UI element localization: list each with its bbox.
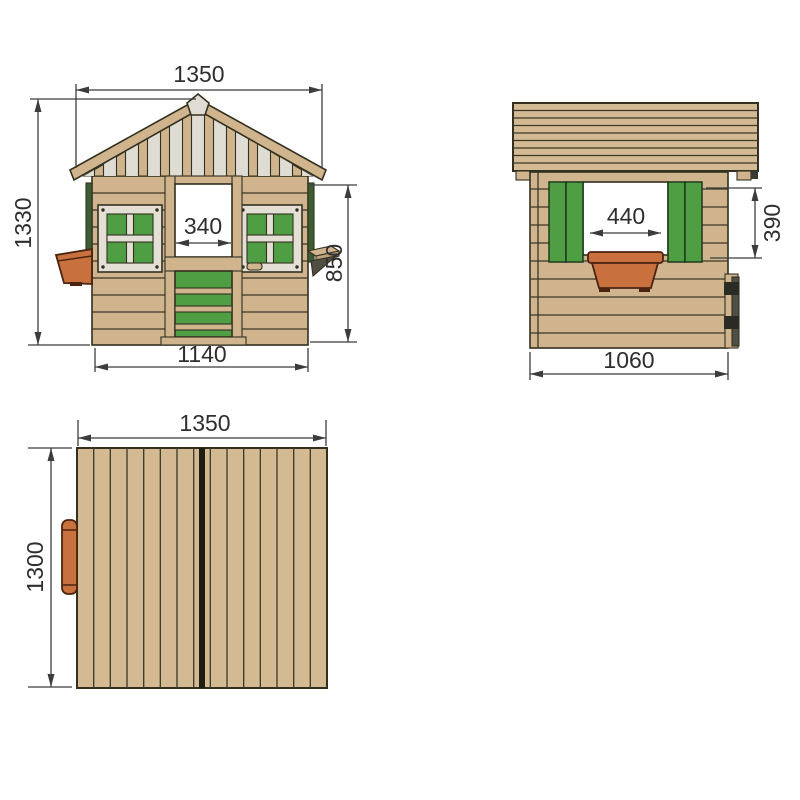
side-roof [513, 103, 758, 171]
front-window-left [98, 205, 162, 272]
front-door [161, 176, 246, 345]
dim-label-side-window-height: 390 [759, 204, 785, 242]
front-flower-box [56, 249, 92, 286]
side-view: 440 390 1060 [513, 103, 785, 380]
side-roof-trim-right [737, 171, 751, 180]
top-flower-box [62, 520, 77, 594]
dimension-side-base-depth: 1060 [530, 347, 728, 380]
hinge-top [724, 282, 739, 295]
dim-label-side-base-depth: 1060 [603, 347, 654, 373]
side-shutter-left [549, 182, 583, 262]
side-shutter-right [668, 182, 702, 262]
dim-label-front-roof-width: 1350 [173, 61, 224, 87]
dimension-top-roof-width: 1350 [78, 410, 326, 446]
dim-label-front-base-width: 1140 [177, 341, 226, 367]
dim-label-top-roof-depth: 1300 [22, 541, 48, 592]
front-roof-peak-block [187, 94, 209, 115]
front-view: 1350 1330 340 850 1140 [10, 61, 357, 372]
side-flower-box [588, 252, 663, 292]
window-latch [247, 263, 262, 270]
side-roof-corner-block [751, 171, 758, 179]
front-window-right [238, 205, 302, 272]
dim-label-top-roof-width: 1350 [179, 410, 230, 436]
playhouse-technical-drawing: 1350 1330 340 850 1140 [0, 0, 800, 800]
top-roof-ridge [199, 448, 205, 688]
hinge-bottom [724, 316, 739, 329]
dim-label-front-overall-height: 1330 [10, 197, 36, 248]
dim-label-front-door-width: 340 [184, 213, 222, 239]
dim-label-front-wall-height: 850 [321, 244, 347, 282]
side-door-edge-hinges [724, 274, 739, 348]
dim-label-side-window-width: 440 [607, 203, 645, 229]
top-view: 1350 1300 [22, 410, 327, 688]
drawing-svg: 1350 1330 340 850 1140 [0, 0, 800, 800]
